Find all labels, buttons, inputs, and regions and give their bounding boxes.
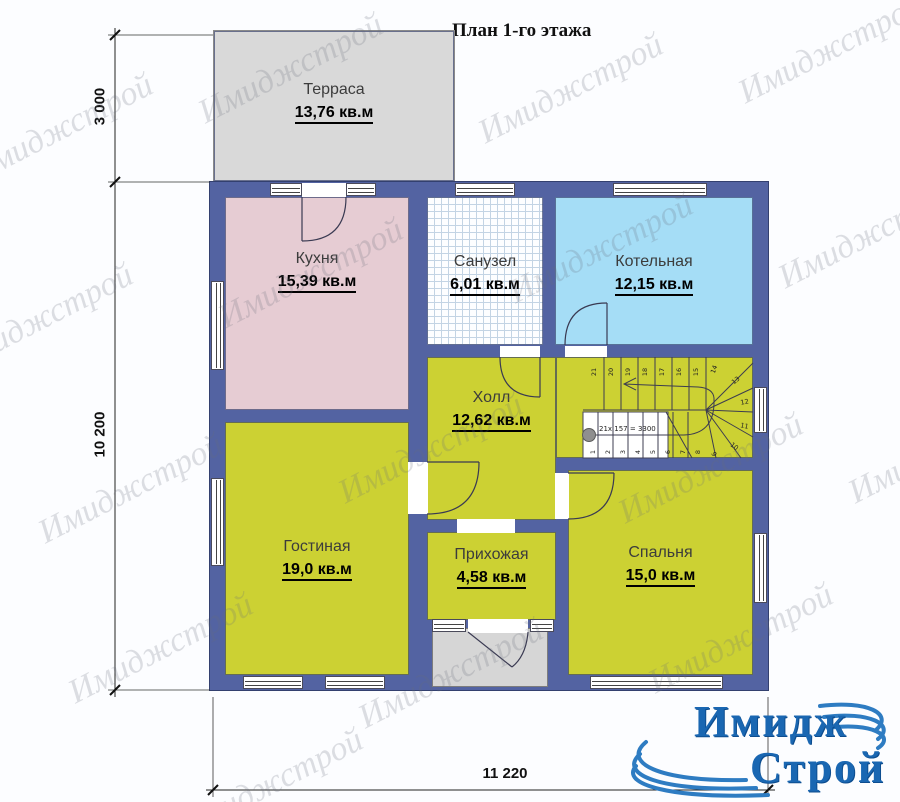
- door-opening-hall-living: [408, 462, 428, 514]
- window-kitchen-top-1: [270, 183, 302, 196]
- room-entry-name: Прихожая: [427, 546, 556, 564]
- dimension-left-top: 3 000: [92, 77, 109, 137]
- staircase-zone: [556, 357, 753, 458]
- room-entry-area: 4,58 кв.м: [427, 569, 556, 587]
- room-boiler: Котельная 12,15 кв.м: [555, 197, 753, 345]
- watermark-text: Имиджстрой: [172, 721, 369, 802]
- room-bedroom-area: 15,0 кв.м: [568, 567, 753, 585]
- window-living-bottom-2: [325, 676, 385, 689]
- logo-line2: Строй: [750, 742, 885, 793]
- room-terrace: Терраса 13,76 кв.м: [213, 30, 455, 182]
- window-living-left: [211, 478, 224, 566]
- room-bedroom-name: Спальня: [568, 544, 753, 562]
- room-hall: Холл 12,62 кв.м: [427, 357, 556, 520]
- room-hall-area: 12,62 кв.м: [427, 412, 556, 430]
- window-kitchen-top-2: [346, 183, 376, 196]
- room-entry: Прихожая 4,58 кв.м: [427, 532, 556, 620]
- company-logo: Имидж Строй: [628, 700, 900, 800]
- watermark-text: Имиджстрой: [732, 0, 900, 112]
- window-stairs-right: [754, 387, 767, 433]
- room-terrace-area: 13,76 кв.м: [214, 104, 454, 122]
- watermark-text: Имиджстрой: [0, 256, 139, 382]
- room-living-area: 19,0 кв.м: [225, 561, 409, 579]
- dimension-bottom: 11 220: [465, 765, 545, 782]
- logo-line1: Имидж: [694, 696, 848, 747]
- window-boiler-top: [613, 183, 707, 196]
- window-kitchen-left: [211, 281, 224, 370]
- watermark-text: Имиджстрой: [472, 26, 669, 152]
- window-bedroom-right: [754, 533, 767, 603]
- room-bathroom: Санузел 6,01 кв.м: [427, 197, 543, 345]
- page-title: План 1-го этажа: [452, 20, 591, 42]
- room-bedroom: Спальня 15,0 кв.м: [568, 470, 753, 675]
- room-living: Гостиная 19,0 кв.м: [225, 422, 409, 675]
- door-opening-boiler: [565, 346, 607, 357]
- opening-hall-entry: [457, 519, 515, 533]
- floor-plan-canvas: План 1-го этажа Терраса 13,76 кв.м Кухня…: [0, 0, 900, 802]
- room-kitchen-area: 15,39 кв.м: [225, 273, 409, 291]
- watermark-text: Имиджстрой: [0, 66, 159, 192]
- window-bathroom-top: [455, 183, 515, 196]
- dimension-left-main: 10 200: [92, 405, 109, 465]
- door-opening-terrace-kitchen: [302, 183, 346, 197]
- watermark-text: Имиджстрой: [842, 386, 900, 512]
- watermark-text: Имиджстрой: [32, 426, 229, 552]
- door-opening-bathroom: [500, 346, 540, 357]
- room-hall-name: Холл: [427, 389, 556, 407]
- room-bathroom-name: Санузел: [427, 253, 543, 271]
- room-terrace-name: Терраса: [214, 81, 454, 99]
- watermark-text: Имиджстрой: [772, 171, 900, 297]
- window-entry-sidelight-right: [530, 619, 554, 632]
- room-boiler-area: 12,15 кв.м: [555, 276, 753, 294]
- room-bathroom-area: 6,01 кв.м: [427, 276, 543, 294]
- room-boiler-name: Котельная: [555, 253, 753, 271]
- room-kitchen: Кухня 15,39 кв.м: [225, 197, 409, 410]
- door-opening-hall-bedroom: [555, 473, 569, 519]
- window-bedroom-bottom: [590, 676, 723, 689]
- entrance-porch: [432, 628, 548, 687]
- window-entry-sidelight-left: [432, 619, 466, 632]
- door-opening-entry-porch: [468, 619, 528, 633]
- room-living-name: Гостиная: [225, 538, 409, 556]
- window-living-bottom-1: [243, 676, 303, 689]
- room-kitchen-name: Кухня: [225, 250, 409, 268]
